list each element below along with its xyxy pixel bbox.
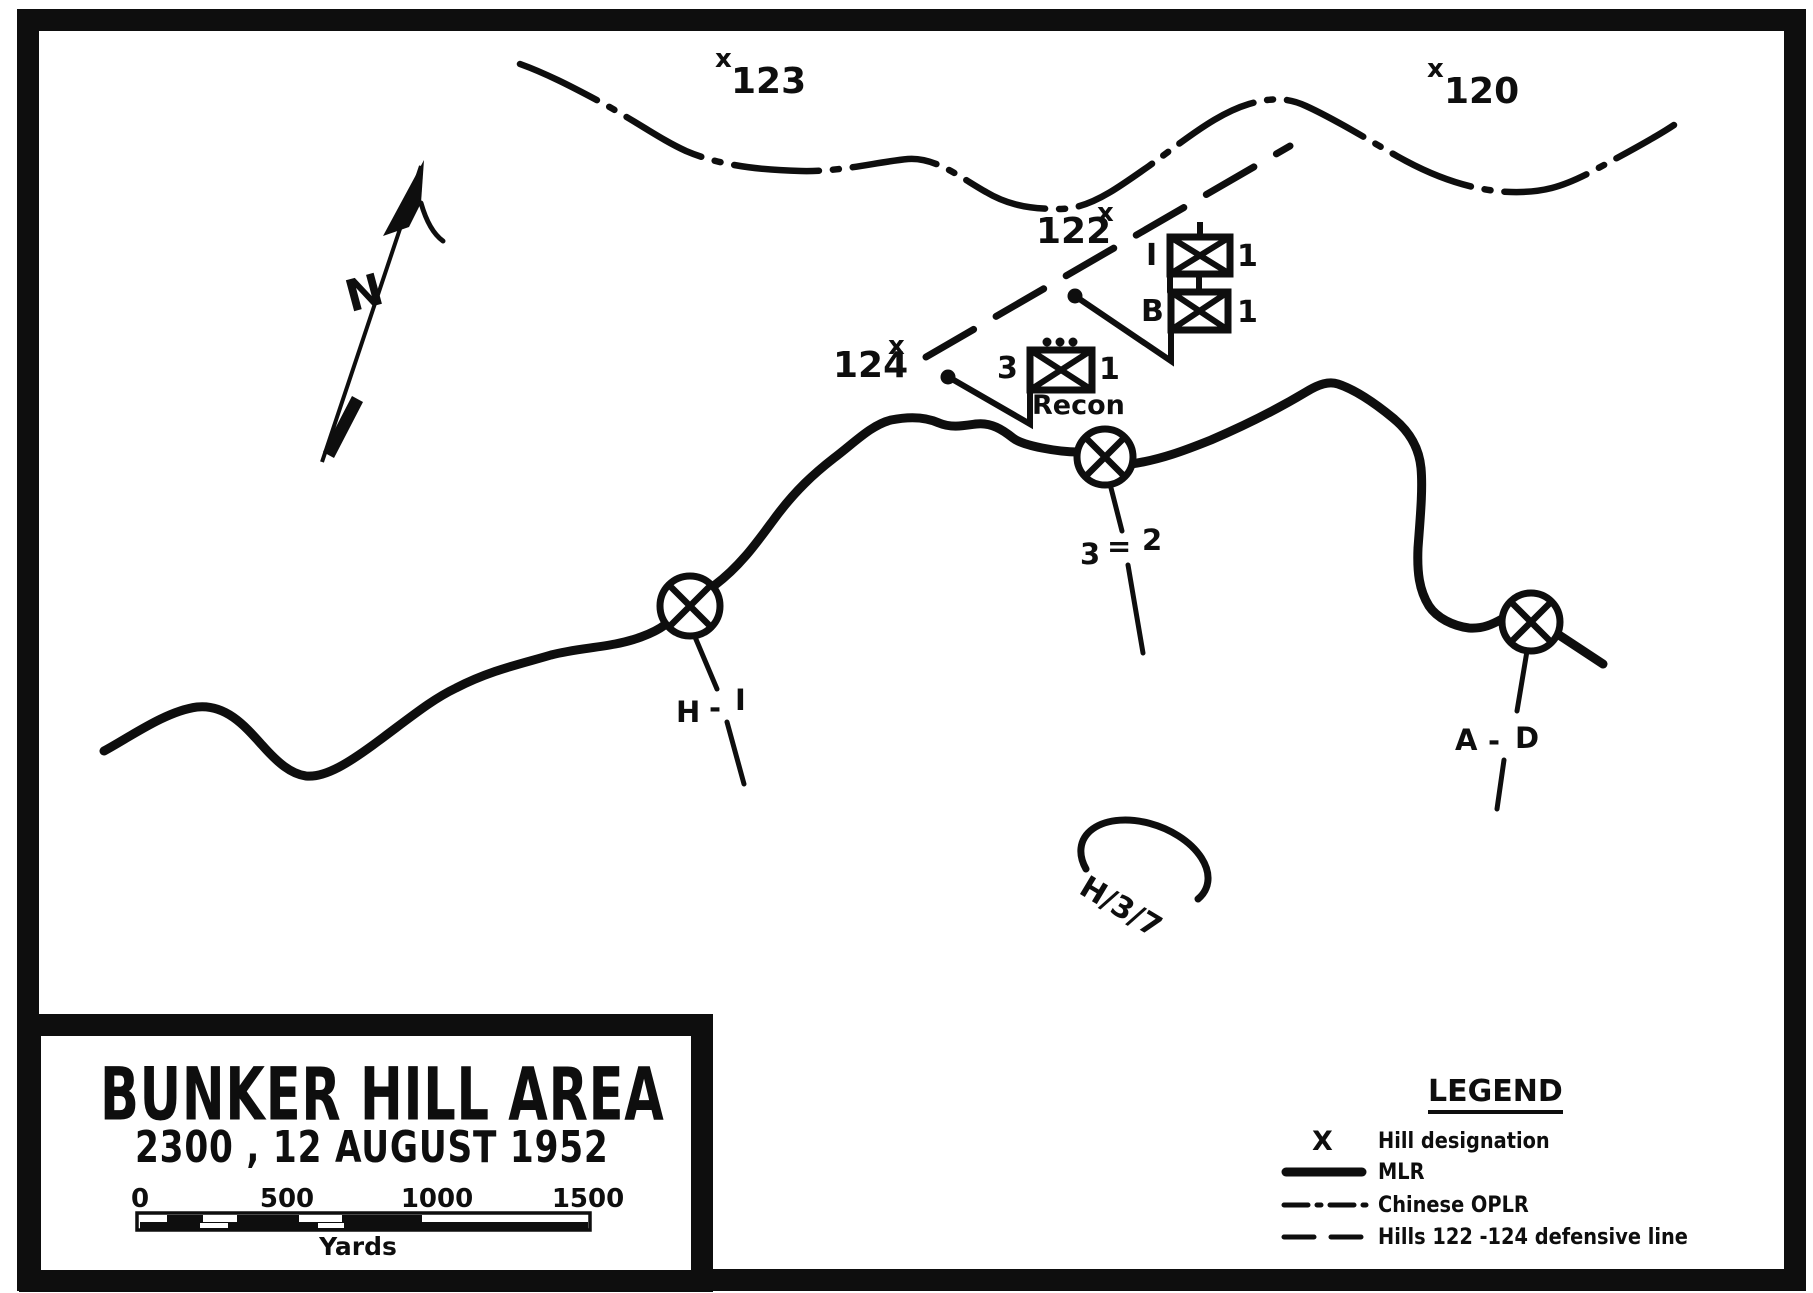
coordination-point-left [660,576,720,636]
unit-recon-left-label: 3 [997,354,1018,384]
unit-i-left-label: I [1146,241,1157,271]
boundary-h-i-left: H [676,698,700,727]
unit-i-right-label: 1 [1237,242,1258,272]
unit-symbol-company-i [1170,222,1230,274]
boundary-3-2-right: 2 [1142,526,1162,555]
scale-unit-label: Yards [319,1234,397,1259]
boundary-a-d-left: A [1455,726,1477,755]
legend-item-hill-designation: Hill designation [1378,1131,1550,1153]
legend-item-chinese-oplr: Chinese OPLR [1378,1195,1529,1217]
hill-124-marker: x [888,333,905,359]
scale-tick-1500: 1500 [552,1186,624,1212]
hill-120-label: 120 [1444,74,1519,110]
scale-tick-500: 500 [260,1186,314,1212]
hill-122-marker: x [1097,200,1114,226]
legend-item-defensive-line: Hills 122 -124 defensive line [1378,1227,1688,1249]
boundary-3-2-left: 3 [1080,540,1100,569]
boundary-h-i-right: I [735,686,746,715]
coordination-point-middle [1077,429,1133,485]
legend-heading: LEGEND [1428,1077,1563,1114]
boundary-3-2-sep: = [1107,532,1131,561]
hill-123-label: 123 [731,64,806,100]
legend-hill-x-glyph: X [1312,1128,1333,1155]
scale-tick-1000: 1000 [401,1186,473,1212]
unit-symbol-company-b [1171,277,1228,330]
scale-tick-0: 0 [131,1186,149,1212]
unit-recon-right-label: 1 [1099,355,1120,385]
legend-item-mlr: MLR [1378,1162,1425,1184]
map-title: BUNKER HILL AREA [100,1058,665,1131]
unit-b-left-label: B [1141,297,1164,327]
boundary-h-i-sep: - [709,694,721,723]
unit-recon-caption: Recon [1032,392,1125,419]
boundary-a-d-right: D [1515,724,1539,753]
hill-120-marker: x [1427,56,1444,82]
hill-123-marker: x [715,46,732,72]
unit-symbol-recon-platoon [1030,338,1092,391]
coordination-point-right [1502,593,1560,651]
map-sheet: x 123 x 120 122 x 124 x I 1 B 1 3 1 Reco… [0,0,1813,1293]
map-datetime: 2300 , 12 AUGUST 1952 [135,1126,609,1170]
boundary-line-3-2 [1110,484,1143,653]
scale-bar [137,1213,590,1230]
boundary-a-d-sep: - [1488,727,1500,756]
unit-b-right-label: 1 [1237,298,1258,328]
